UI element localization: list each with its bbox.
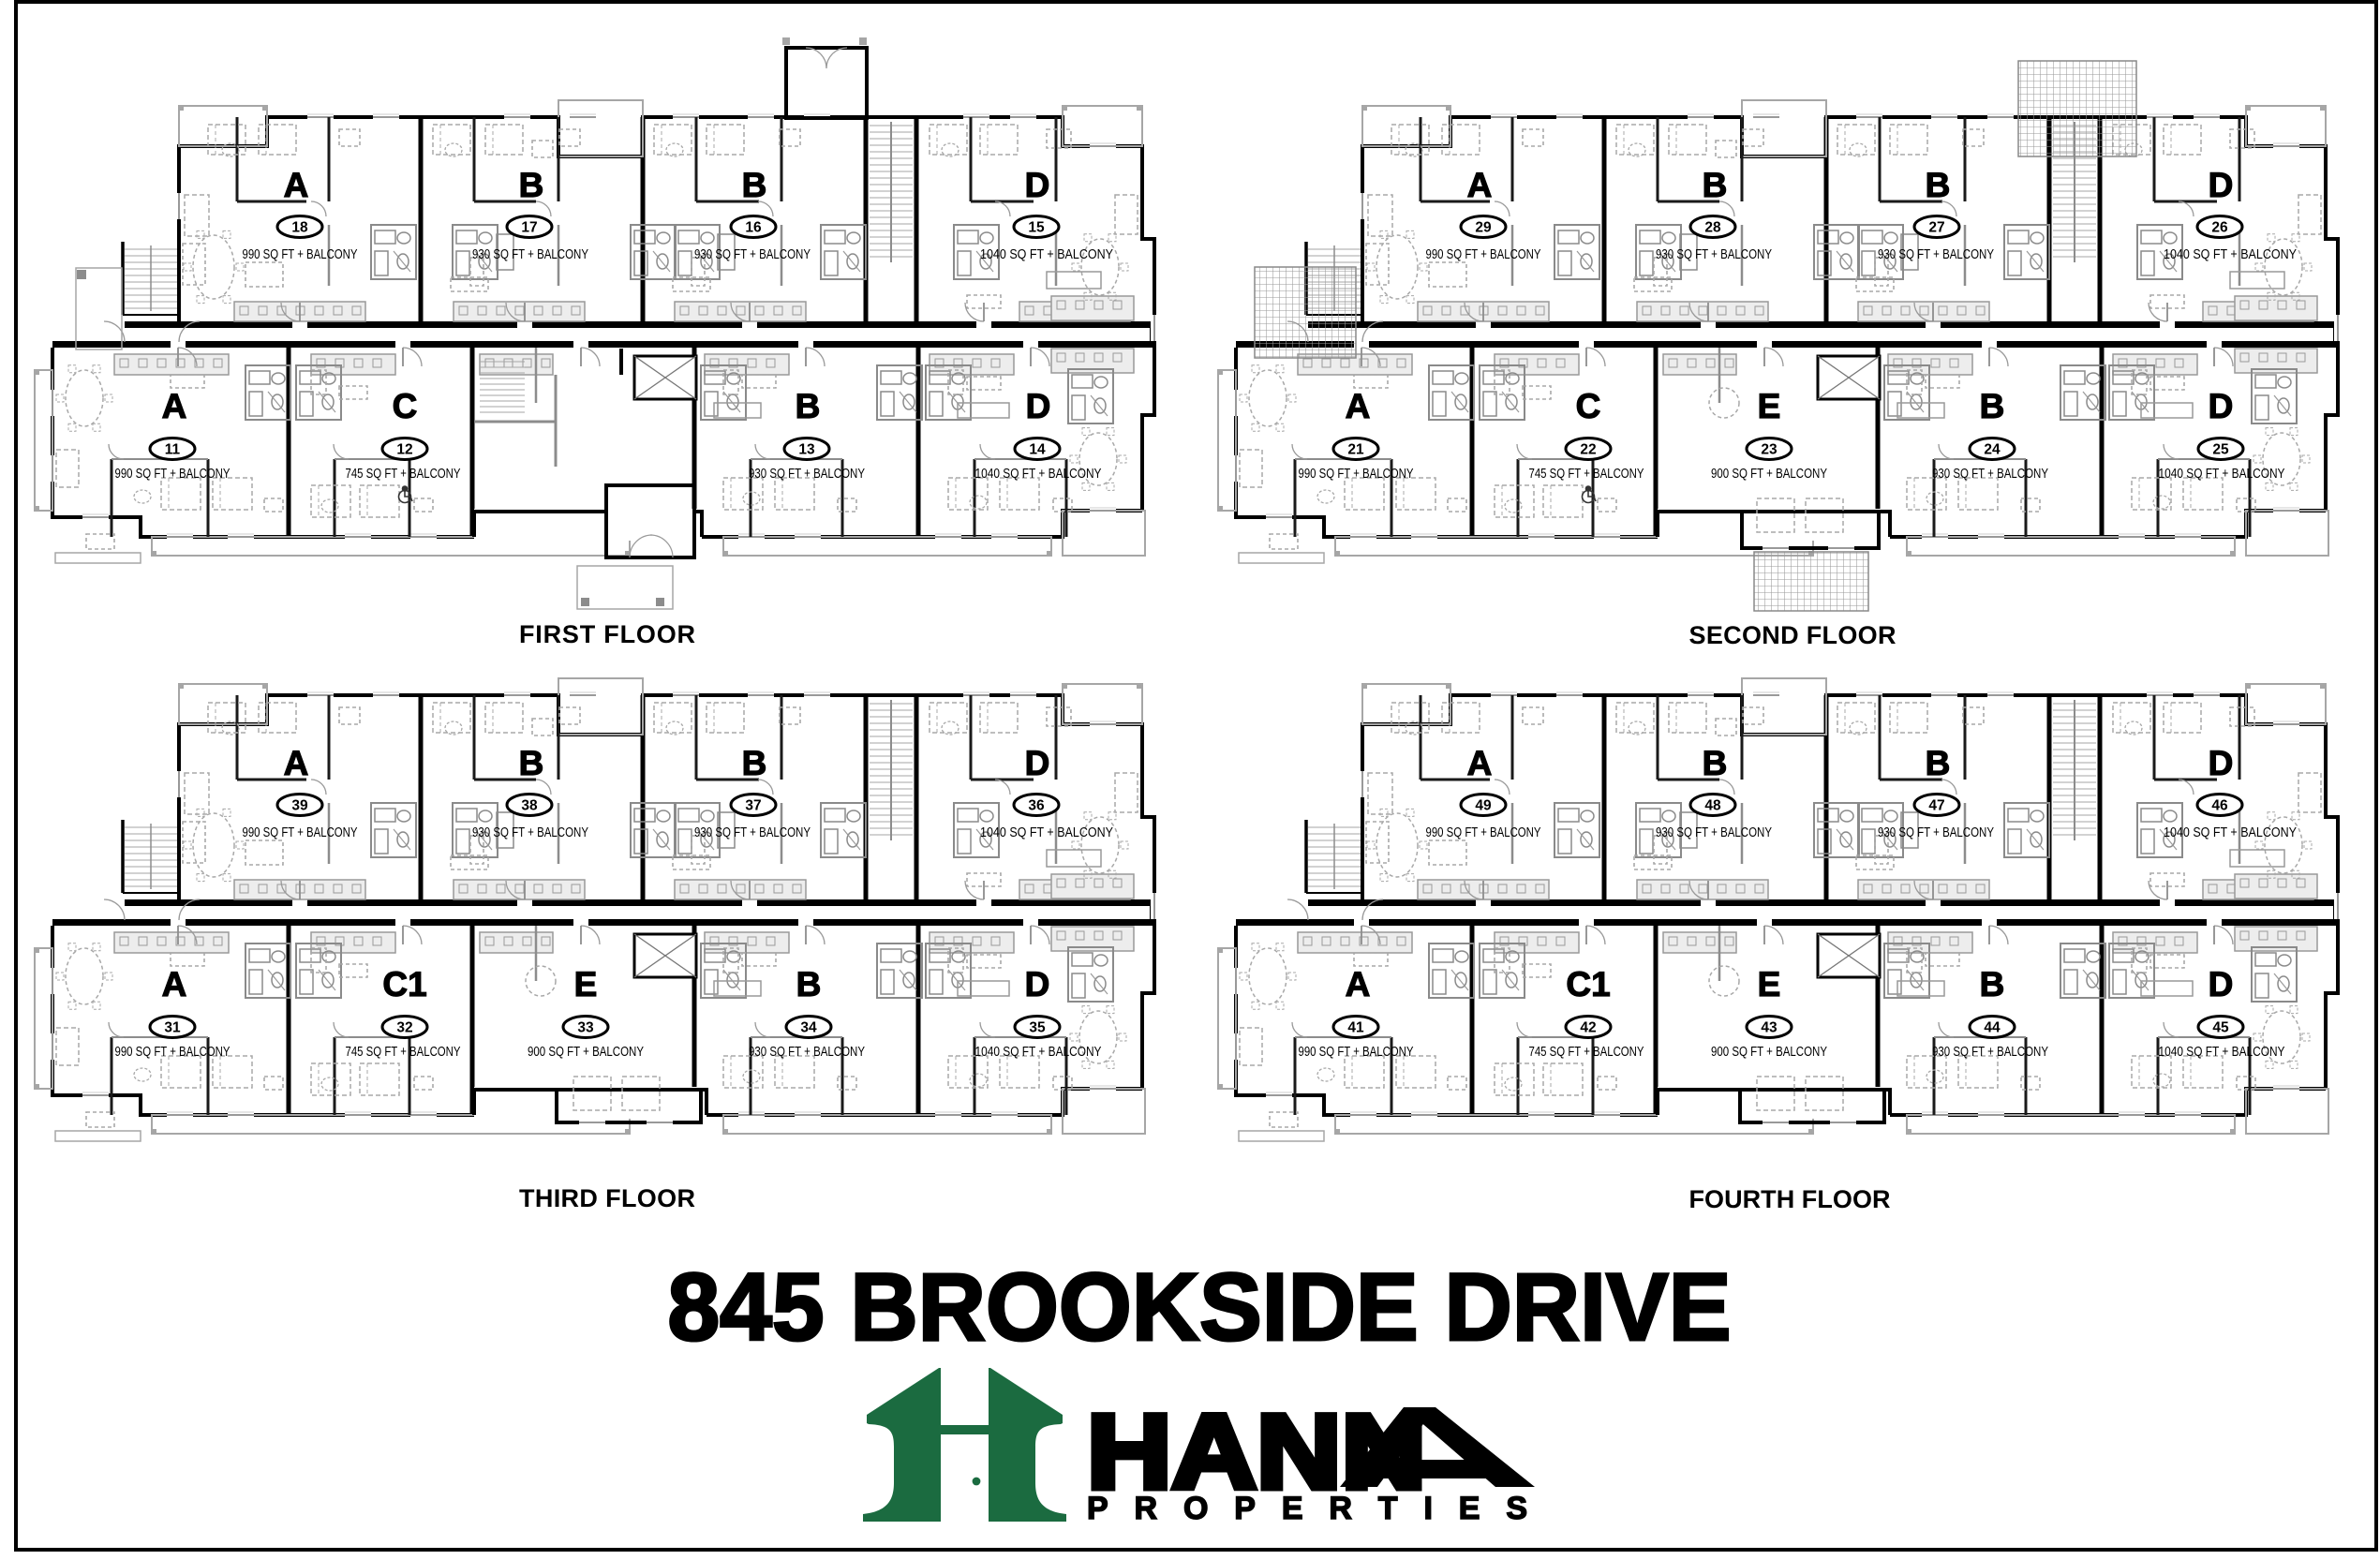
svg-text:A: A — [1467, 744, 1493, 782]
svg-text:845 BROOKSIDE DRIVE: 845 BROOKSIDE DRIVE — [668, 1254, 1732, 1360]
svg-text:46: 46 — [2211, 798, 2228, 814]
svg-text:29: 29 — [1475, 220, 1492, 236]
svg-text:25: 25 — [2212, 442, 2229, 458]
svg-text:17: 17 — [521, 220, 537, 236]
svg-text:A: A — [1467, 166, 1493, 204]
svg-text:23: 23 — [1761, 442, 1778, 458]
svg-text:C1: C1 — [1566, 965, 1610, 1003]
svg-text:930 SQ FT + BALCONY: 930 SQ FT + BALCONY — [1656, 247, 1772, 262]
svg-text:32: 32 — [396, 1020, 412, 1036]
svg-text:930 SQ FT + BALCONY: 930 SQ FT + BALCONY — [694, 247, 811, 262]
svg-text:11: 11 — [165, 442, 181, 458]
svg-text:B: B — [1703, 166, 1728, 204]
svg-text:1040 SQ FT + BALCONY: 1040 SQ FT + BALCONY — [2159, 467, 2285, 482]
svg-text:990 SQ FT + BALCONY: 990 SQ FT + BALCONY — [115, 467, 231, 482]
svg-text:B: B — [796, 965, 822, 1003]
svg-text:D: D — [1025, 166, 1050, 204]
svg-text:D: D — [1025, 965, 1050, 1003]
svg-text:745 SQ FT + BALCONY: 745 SQ FT + BALCONY — [346, 1045, 461, 1060]
svg-text:C1: C1 — [382, 965, 426, 1003]
svg-text:39: 39 — [291, 798, 308, 814]
svg-text:47: 47 — [1928, 798, 1944, 814]
svg-text:15: 15 — [1028, 220, 1045, 236]
svg-text:A: A — [284, 166, 309, 204]
svg-text:930 SQ FT + BALCONY: 930 SQ FT + BALCONY — [1878, 247, 1994, 262]
svg-text:SECOND FLOOR: SECOND FLOOR — [1689, 621, 1897, 649]
svg-text:16: 16 — [745, 220, 762, 236]
svg-text:FIRST FLOOR: FIRST FLOOR — [519, 620, 695, 648]
svg-text:B: B — [519, 744, 544, 782]
svg-text:31: 31 — [164, 1020, 181, 1036]
svg-text:D: D — [2209, 387, 2234, 425]
svg-text:E: E — [574, 965, 598, 1003]
svg-text:37: 37 — [745, 798, 761, 814]
svg-text:990 SQ FT + BALCONY: 990 SQ FT + BALCONY — [115, 1045, 231, 1060]
svg-text:1040 SQ FT + BALCONY: 1040 SQ FT + BALCONY — [975, 1045, 1102, 1060]
svg-text:A: A — [1346, 965, 1371, 1003]
svg-text:1040 SQ FT + BALCONY: 1040 SQ FT + BALCONY — [2164, 825, 2297, 840]
svg-text:930 SQ FT + BALCONY: 930 SQ FT + BALCONY — [1932, 1045, 2048, 1060]
svg-text:B: B — [1926, 744, 1951, 782]
svg-text:990 SQ FT + BALCONY: 990 SQ FT + BALCONY — [1426, 247, 1541, 262]
svg-text:FOURTH FLOOR: FOURTH FLOOR — [1689, 1185, 1891, 1213]
svg-text:12: 12 — [396, 442, 412, 458]
svg-text:990 SQ FT + BALCONY: 990 SQ FT + BALCONY — [1299, 467, 1414, 482]
svg-text:930 SQ FT + BALCONY: 930 SQ FT + BALCONY — [472, 247, 588, 262]
svg-text:990 SQ FT + BALCONY: 990 SQ FT + BALCONY — [243, 247, 358, 262]
svg-text:C: C — [393, 387, 418, 425]
svg-text:D: D — [2209, 744, 2234, 782]
svg-text:A: A — [162, 387, 187, 425]
svg-text:1040 SQ FT + BALCONY: 1040 SQ FT + BALCONY — [975, 467, 1102, 482]
svg-text:E: E — [1758, 387, 1781, 425]
svg-text:42: 42 — [1580, 1020, 1596, 1036]
svg-text:44: 44 — [1984, 1020, 2001, 1036]
svg-text:27: 27 — [1928, 220, 1944, 236]
svg-text:C: C — [1576, 387, 1601, 425]
svg-text:A: A — [1346, 387, 1371, 425]
svg-text:B: B — [519, 166, 544, 204]
svg-text:930 SQ FT + BALCONY: 930 SQ FT + BALCONY — [749, 1045, 865, 1060]
svg-text:990 SQ FT + BALCONY: 990 SQ FT + BALCONY — [1299, 1045, 1414, 1060]
svg-text:A: A — [162, 965, 187, 1003]
svg-text:45: 45 — [2212, 1020, 2229, 1036]
svg-text:745 SQ FT + BALCONY: 745 SQ FT + BALCONY — [1529, 1045, 1644, 1060]
svg-text:22: 22 — [1580, 442, 1596, 458]
svg-text:1040 SQ FT + BALCONY: 1040 SQ FT + BALCONY — [980, 247, 1113, 262]
svg-text:33: 33 — [577, 1020, 594, 1036]
svg-text:900 SQ FT + BALCONY: 900 SQ FT + BALCONY — [1711, 1045, 1827, 1060]
svg-text:1040 SQ FT + BALCONY: 1040 SQ FT + BALCONY — [2159, 1045, 2285, 1060]
svg-text:B: B — [742, 744, 767, 782]
svg-text:900 SQ FT + BALCONY: 900 SQ FT + BALCONY — [1711, 467, 1827, 482]
svg-text:A: A — [284, 744, 309, 782]
svg-text:41: 41 — [1347, 1020, 1364, 1036]
svg-text:D: D — [1026, 387, 1051, 425]
svg-text:930 SQ FT + BALCONY: 930 SQ FT + BALCONY — [694, 825, 811, 840]
svg-text:35: 35 — [1029, 1020, 1046, 1036]
svg-text:930 SQ FT + BALCONY: 930 SQ FT + BALCONY — [472, 825, 588, 840]
svg-text:1040 SQ FT + BALCONY: 1040 SQ FT + BALCONY — [2164, 247, 2297, 262]
svg-text:21: 21 — [1347, 442, 1364, 458]
svg-text:24: 24 — [1984, 442, 2001, 458]
svg-text:B: B — [796, 387, 821, 425]
svg-text:B: B — [1926, 166, 1951, 204]
svg-text:13: 13 — [798, 442, 815, 458]
svg-text:36: 36 — [1028, 798, 1045, 814]
svg-text:34: 34 — [800, 1020, 817, 1036]
svg-text:14: 14 — [1029, 442, 1046, 458]
svg-text:26: 26 — [2211, 220, 2228, 236]
svg-text:930 SQ FT + BALCONY: 930 SQ FT + BALCONY — [749, 467, 865, 482]
svg-text:745 SQ FT + BALCONY: 745 SQ FT + BALCONY — [1529, 467, 1644, 482]
svg-text:18: 18 — [291, 220, 308, 236]
svg-text:38: 38 — [521, 798, 538, 814]
svg-text:28: 28 — [1704, 220, 1721, 236]
svg-text:48: 48 — [1704, 798, 1721, 814]
svg-text:990 SQ FT + BALCONY: 990 SQ FT + BALCONY — [1426, 825, 1541, 840]
svg-text:745 SQ FT + BALCONY: 745 SQ FT + BALCONY — [346, 467, 461, 482]
svg-text:930 SQ FT + BALCONY: 930 SQ FT + BALCONY — [1932, 467, 2048, 482]
svg-text:43: 43 — [1761, 1020, 1778, 1036]
svg-text:E: E — [1758, 965, 1781, 1003]
svg-text:D: D — [1025, 744, 1050, 782]
svg-text:D: D — [2209, 965, 2234, 1003]
svg-text:49: 49 — [1475, 798, 1492, 814]
svg-text:B: B — [742, 166, 767, 204]
svg-text:B: B — [1980, 387, 2005, 425]
svg-text:B: B — [1703, 744, 1728, 782]
svg-text:930 SQ FT + BALCONY: 930 SQ FT + BALCONY — [1878, 825, 1994, 840]
svg-text:1040 SQ FT + BALCONY: 1040 SQ FT + BALCONY — [980, 825, 1113, 840]
svg-text:B: B — [1980, 965, 2005, 1003]
svg-text:990 SQ FT + BALCONY: 990 SQ FT + BALCONY — [243, 825, 358, 840]
svg-text:900 SQ FT + BALCONY: 900 SQ FT + BALCONY — [528, 1045, 644, 1060]
svg-text:THIRD FLOOR: THIRD FLOOR — [519, 1184, 695, 1212]
svg-text:930 SQ FT + BALCONY: 930 SQ FT + BALCONY — [1656, 825, 1772, 840]
svg-text:D: D — [2209, 166, 2234, 204]
